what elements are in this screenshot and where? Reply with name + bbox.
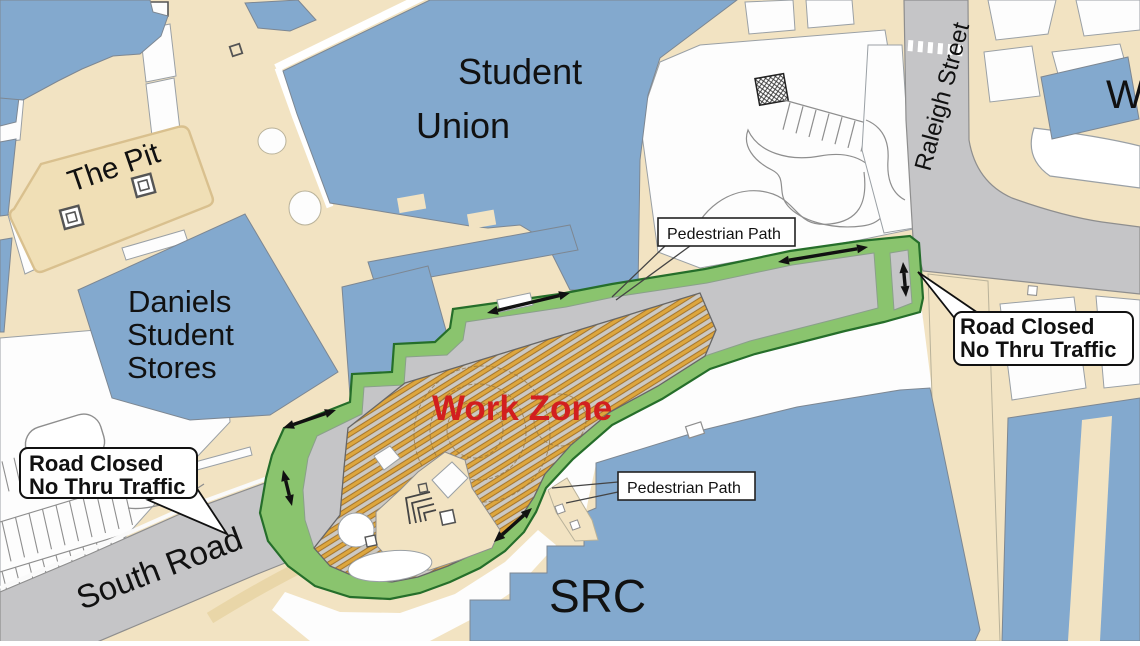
svg-text:Stores: Stores xyxy=(127,350,217,385)
svg-text:Student: Student xyxy=(127,317,234,352)
svg-text:No Thru Traffic: No Thru Traffic xyxy=(29,474,185,499)
svg-text:W: W xyxy=(1106,73,1140,117)
svg-text:Road Closed: Road Closed xyxy=(29,451,163,476)
svg-text:Work Zone: Work Zone xyxy=(432,389,612,428)
svg-text:Union: Union xyxy=(416,105,510,146)
svg-text:SRC: SRC xyxy=(549,570,646,622)
svg-text:Road Closed: Road Closed xyxy=(960,314,1094,339)
svg-text:No Thru Traffic: No Thru Traffic xyxy=(960,337,1116,362)
svg-text:Daniels: Daniels xyxy=(128,284,231,319)
svg-text:Pedestrian Path: Pedestrian Path xyxy=(667,226,781,243)
svg-text:Pedestrian Path: Pedestrian Path xyxy=(627,480,741,497)
svg-text:Student: Student xyxy=(458,51,582,92)
